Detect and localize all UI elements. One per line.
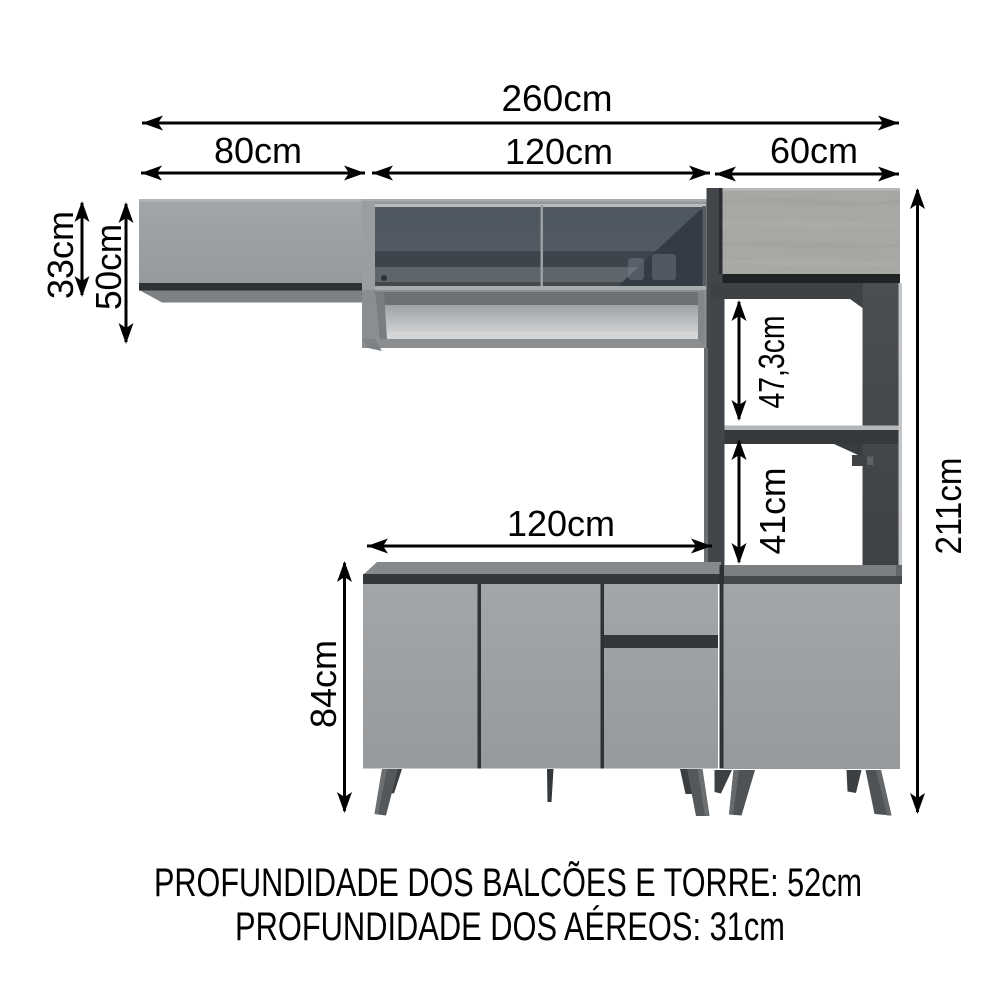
svg-text:260cm: 260cm xyxy=(501,78,612,119)
svg-text:PROFUNDIDADE DOS BALCÕES E TOR: PROFUNDIDADE DOS BALCÕES E TORRE: 52cm xyxy=(154,860,862,905)
svg-text:50cm: 50cm xyxy=(88,224,129,310)
svg-text:41cm: 41cm xyxy=(752,468,793,555)
svg-text:PROFUNDIDADE DOS AÉREOS: 31cm: PROFUNDIDADE DOS AÉREOS: 31cm xyxy=(235,904,785,949)
svg-text:120cm: 120cm xyxy=(507,503,615,544)
svg-text:211cm: 211cm xyxy=(928,458,969,555)
svg-text:120cm: 120cm xyxy=(505,131,613,172)
svg-text:84cm: 84cm xyxy=(303,640,344,728)
svg-text:80cm: 80cm xyxy=(214,130,302,171)
svg-text:60cm: 60cm xyxy=(770,130,858,171)
svg-text:33cm: 33cm xyxy=(40,211,81,299)
svg-text:47,3cm: 47,3cm xyxy=(751,316,792,409)
